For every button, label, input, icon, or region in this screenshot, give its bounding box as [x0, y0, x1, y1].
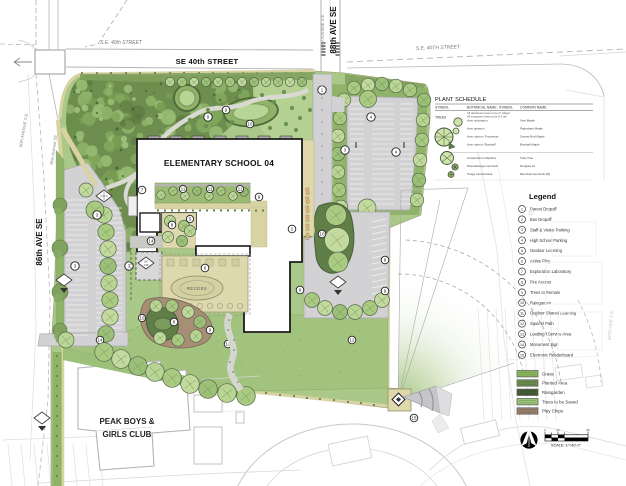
svg-text:Play Chips: Play Chips — [542, 409, 564, 414]
svg-text:10: 10 — [520, 301, 524, 305]
svg-text:Active Play: Active Play — [530, 259, 551, 264]
svg-text:Planted Area: Planted Area — [542, 381, 568, 386]
svg-text:Loading / Service Area: Loading / Service Area — [530, 332, 572, 337]
svg-text:Bowhall Maple: Bowhall Maple — [520, 143, 540, 147]
svg-text:High School Parking: High School Parking — [530, 238, 568, 243]
svg-text:4:35: 4:35 — [144, 264, 149, 267]
svg-text:14: 14 — [149, 239, 154, 244]
svg-text:Electronic Readerboard: Electronic Readerboard — [530, 352, 574, 357]
svg-text:13: 13 — [520, 332, 524, 336]
svg-text:Douglas Fir: Douglas Fir — [520, 164, 535, 168]
svg-text:SYMBOL: SYMBOL — [435, 106, 449, 110]
svg-text:SCALE: 1"=40'-0": SCALE: 1"=40'-0" — [551, 444, 582, 448]
svg-text:10: 10 — [320, 232, 325, 237]
svg-text:Sunset Red Maple: Sunset Red Maple — [520, 135, 545, 139]
svg-text:Monument Sign: Monument Sign — [530, 342, 559, 347]
svg-text:88th AVE SE: 88th AVE SE — [329, 6, 338, 54]
svg-text:Pseudotsuga menziesii: Pseudotsuga menziesii — [467, 164, 498, 168]
svg-text:Squirrel Path: Squirrel Path — [530, 321, 554, 326]
svg-text:Trees to be Saved: Trees to be Saved — [542, 399, 578, 404]
svg-text:TREES: TREES — [435, 116, 447, 120]
svg-text:Fire Access: Fire Access — [530, 279, 551, 284]
svg-text:Trees to Remain: Trees to Remain — [530, 290, 561, 295]
svg-text:S.E. 40th STREET: S.E. 40th STREET — [100, 40, 143, 46]
svg-text:Mountain Hemlock (M): Mountain Hemlock (M) — [520, 172, 550, 176]
svg-text:SE 40th STREET: SE 40th STREET — [176, 57, 239, 66]
svg-text:12: 12 — [350, 338, 355, 343]
svg-text:PLANT SCHEDULE: PLANT SCHEDULE — [435, 97, 487, 103]
svg-text:86th AVE SE: 86th AVE SE — [35, 218, 44, 266]
svg-text:84TH AVENUE S.E.: 84TH AVENUE S.E. — [320, 13, 325, 50]
svg-text:8: 8 — [521, 280, 523, 284]
svg-text:Tsuga mertensiana: Tsuga mertensiana — [467, 172, 493, 176]
svg-text:Bus Dropoff: Bus Dropoff — [530, 217, 552, 222]
svg-text:15: 15 — [520, 353, 524, 357]
svg-text:Acer griseum: Acer griseum — [467, 127, 485, 131]
svg-text:6: 6 — [521, 260, 523, 264]
svg-text:4: 4 — [521, 239, 523, 243]
svg-text:12: 12 — [520, 322, 524, 326]
svg-text:9: 9 — [521, 291, 523, 295]
svg-text:1: 1 — [521, 207, 523, 211]
svg-text:Parent Dropoff: Parent Dropoff — [530, 207, 557, 212]
svg-text:5: 5 — [521, 249, 523, 253]
svg-text:Acer circinatum: Acer circinatum — [467, 119, 488, 123]
svg-text:Exploration Laboratory: Exploration Laboratory — [530, 269, 572, 274]
svg-text:ELEMENTARY SCHOOL 04: ELEMENTARY SCHOOL 04 — [164, 158, 274, 168]
svg-text:Outdoor Learning: Outdoor Learning — [530, 248, 563, 253]
svg-text:BOTANICAL NAME: BOTANICAL NAME — [467, 106, 497, 110]
svg-text:Outdoor Shared Learning: Outdoor Shared Learning — [530, 311, 577, 316]
svg-text:7: 7 — [521, 270, 523, 274]
svg-text:11: 11 — [208, 187, 213, 192]
svg-text:11: 11 — [181, 187, 186, 192]
svg-text:14: 14 — [98, 338, 103, 343]
svg-text:GIRLS CLUB: GIRLS CLUB — [103, 430, 152, 439]
svg-text:PEAK BOYS &: PEAK BOYS & — [99, 417, 154, 426]
svg-text:15: 15 — [412, 416, 417, 421]
svg-text:14: 14 — [520, 343, 524, 347]
svg-text:2: 2 — [521, 218, 523, 222]
svg-text:SYMBOL: SYMBOL — [499, 106, 513, 110]
svg-text:Raingarden: Raingarden — [530, 300, 552, 305]
svg-text:COMMON NAME: COMMON NAME — [520, 106, 547, 110]
svg-text:3: 3 — [521, 228, 523, 232]
svg-text:Grass: Grass — [542, 371, 555, 376]
svg-text:11: 11 — [520, 312, 524, 316]
svg-text:Staff & Visitor Parking: Staff & Visitor Parking — [530, 227, 570, 232]
svg-text:Tulip Tree: Tulip Tree — [520, 156, 534, 160]
svg-text:Legend: Legend — [529, 192, 556, 201]
svg-text:Acer rubrum 'Bowhall': Acer rubrum 'Bowhall' — [467, 143, 496, 147]
svg-text:10: 10 — [248, 122, 253, 127]
svg-text:Paperbark Maple: Paperbark Maple — [520, 127, 543, 131]
svg-text:Vine Maple: Vine Maple — [520, 119, 535, 123]
svg-text:11: 11 — [238, 187, 243, 192]
svg-text:Liriodendron tulipifera: Liriodendron tulipifera — [467, 156, 496, 160]
svg-text:10: 10 — [140, 316, 145, 321]
svg-text:Raingarden: Raingarden — [542, 390, 565, 395]
svg-text:Acer rubrum 'Frontenac': Acer rubrum 'Frontenac' — [467, 135, 499, 139]
svg-text:RECESS: RECESS — [187, 286, 207, 291]
